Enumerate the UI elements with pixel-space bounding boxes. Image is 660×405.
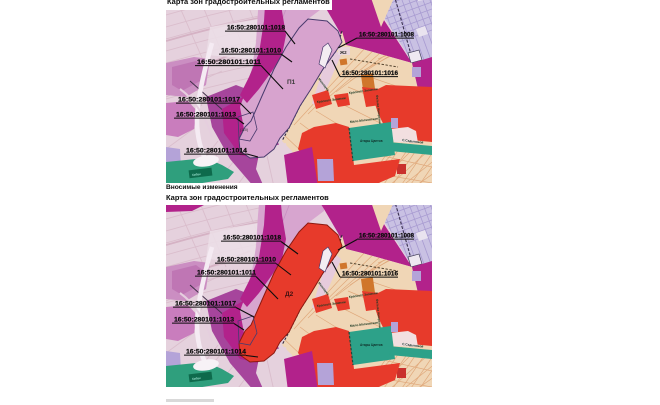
svg-text:16:50:280101:1010: 16:50:280101:1010: [217, 257, 277, 264]
svg-text:Атары Цветов: Атары Цветов: [360, 343, 383, 347]
svg-text:16:50:280101:1013: 16:50:280101:1013: [174, 317, 235, 324]
svg-text:16:50:280101:1017: 16:50:280101:1017: [175, 301, 237, 308]
svg-text:16:50:280101:1014: 16:50:280101:1014: [186, 349, 247, 356]
svg-text:16:50:280101:1010: 16:50:280101:1010: [221, 48, 282, 55]
svg-text:16:50:280101:1013: 16:50:280101:1013: [176, 112, 237, 119]
svg-text:Ж2: Ж2: [339, 50, 347, 55]
svg-text:16:50:280101:1018: 16:50:280101:1018: [227, 25, 286, 32]
svg-text:П1: П1: [287, 79, 296, 86]
svg-text:Атары Цветов: Атары Цветов: [360, 139, 383, 143]
svg-text:16:50:280101:1018: 16:50:280101:1018: [223, 235, 282, 242]
svg-text:(110): (110): [240, 128, 248, 132]
svg-text:16:50:280101:1008: 16:50:280101:1008: [359, 32, 414, 39]
svg-text:16:50:280101:1008: 16:50:280101:1008: [359, 233, 414, 240]
svg-text:16:50:280101:1016: 16:50:280101:1016: [342, 70, 398, 77]
svg-text:Д2: Д2: [285, 291, 294, 298]
svg-text:16:50:280101:1011: 16:50:280101:1011: [197, 270, 257, 277]
svg-text:16:50:280101:1016: 16:50:280101:1016: [342, 271, 398, 278]
svg-text:16:50:280101:1017: 16:50:280101:1017: [178, 97, 241, 104]
svg-text:16:50:280101:1014: 16:50:280101:1014: [186, 148, 248, 155]
svg-text:16:50:280101:1011: 16:50:280101:1011: [197, 59, 262, 66]
